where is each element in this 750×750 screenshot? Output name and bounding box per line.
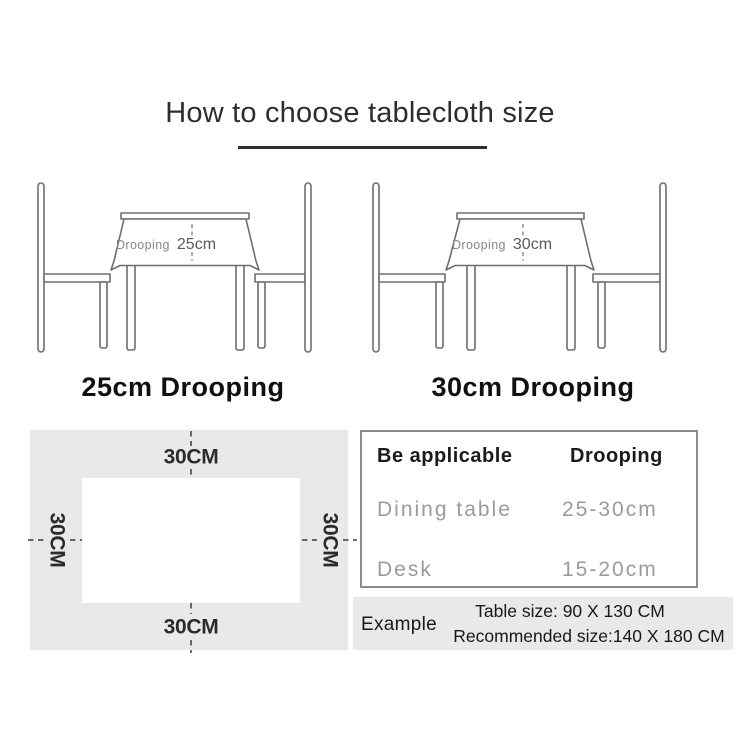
tabletop-edge <box>121 213 249 219</box>
spec-row-desk-value: 15-20cm <box>562 558 658 582</box>
size-margin-diagram: 30CM 30CM 30CM 30CM <box>28 430 357 653</box>
caption-25cm-drooping: 25cm Drooping <box>38 372 328 403</box>
drooping-value: 30cm <box>513 236 552 253</box>
chair-right-icon <box>255 183 311 352</box>
dim-label-right: 30CM <box>319 513 342 568</box>
example-label: Example <box>361 614 437 636</box>
chair-back-rail <box>373 183 379 352</box>
table-leg-left <box>467 262 475 350</box>
chair-back-rail <box>660 183 666 352</box>
chair-seat <box>379 274 445 282</box>
drooping-value: 25cm <box>177 236 216 253</box>
chair-seat <box>593 274 660 282</box>
drooping-word: Drooping <box>452 238 506 252</box>
spec-header-applicable: Be applicable <box>377 445 512 468</box>
chair-back-rail <box>305 183 311 352</box>
table-leg-right <box>236 262 244 350</box>
scene-25cm: Drooping25cm <box>38 183 311 352</box>
dim-label-left: 30CM <box>46 513 69 568</box>
chair-right-icon <box>593 183 666 352</box>
chair-front-leg <box>258 282 265 348</box>
spec-header-drooping: Drooping <box>570 445 663 468</box>
chair-left-icon <box>38 183 110 352</box>
chair-front-leg <box>436 282 443 348</box>
table-leg-right <box>567 262 575 350</box>
spec-row-dining-value: 25-30cm <box>562 498 658 522</box>
spec-row-desk-name: Desk <box>377 558 433 582</box>
chair-back-rail <box>38 183 44 352</box>
drooping-word: Drooping <box>116 238 170 252</box>
chair-seat <box>255 274 305 282</box>
tabletop-area <box>82 478 300 603</box>
chair-front-leg <box>100 282 107 348</box>
chair-front-leg <box>598 282 605 348</box>
tabletop-edge <box>457 213 584 219</box>
dim-label-bottom: 30CM <box>164 616 219 639</box>
scene-30cm: Drooping30cm <box>373 183 666 352</box>
example-recommended-size: Recommended size:140 X 180 CM <box>445 626 733 647</box>
dim-label-top: 30CM <box>164 446 219 469</box>
spec-table: Be applicable Drooping Dining table 25-3… <box>360 430 698 588</box>
drooping-annotation: Drooping30cm <box>452 236 552 253</box>
chair-seat <box>44 274 110 282</box>
caption-30cm-drooping: 30cm Drooping <box>388 372 678 403</box>
example-panel: Example Table size: 90 X 130 CM Recommen… <box>353 597 733 650</box>
chair-left-icon <box>373 183 445 352</box>
spec-row-dining-name: Dining table <box>377 498 512 522</box>
example-table-size: Table size: 90 X 130 CM <box>445 601 695 622</box>
drooping-annotation: Drooping25cm <box>116 236 216 253</box>
table-leg-left <box>127 262 135 350</box>
